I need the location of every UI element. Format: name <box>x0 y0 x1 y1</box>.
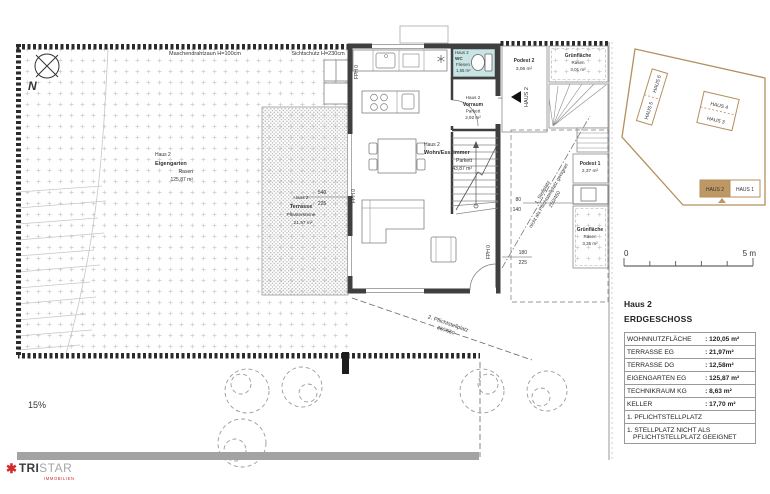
table-row: EIGENGARTEN EG: 125,87 m² <box>625 372 756 385</box>
info-panel: Haus 2 ERDGESCHOSS WOHNNUTZFLÄCHE: 120,0… <box>624 299 758 444</box>
toilet-icon <box>472 54 493 71</box>
svg-text:Rasen: Rasen <box>571 60 585 65</box>
podest1: Podest 1 2,37 m² <box>573 154 608 183</box>
svg-text:2,37 m²: 2,37 m² <box>582 168 599 174</box>
svg-text:3,06 m²: 3,06 m² <box>516 66 533 72</box>
logo-subtitle: IMMOBILIEN <box>44 477 75 481</box>
table-row: TERRASSE EG: 21,97m² <box>625 346 756 359</box>
svg-text:80: 80 <box>515 197 521 203</box>
svg-text:3,01 m²: 3,01 m² <box>570 67 586 72</box>
table-row-note: 1. STELLPLATZ NICHT ALS PFLICHTSTELLPLAT… <box>625 424 756 444</box>
exterior-stairs <box>549 84 608 152</box>
svg-text:WC: WC <box>455 56 463 61</box>
svg-text:Terrasse: Terrasse <box>290 204 313 210</box>
svg-text:Grünfläche: Grünfläche <box>577 227 604 233</box>
area-table: WOHNNUTZFLÄCHE: 120,05 m² TERRASSE EG: 2… <box>624 332 756 444</box>
north-label: N <box>28 79 37 93</box>
logo-star-icon: ✱ <box>6 461 17 476</box>
svg-text:Podest 2: Podest 2 <box>514 58 535 64</box>
terrace-area: Haus 2 Terrasse Pflastersteine 21,97 m² <box>262 107 348 295</box>
svg-text:140: 140 <box>513 207 522 213</box>
building: Haus 2 WC Fliesen 1,65 m² Haus 2 Vorraum… <box>347 44 525 294</box>
svg-text:225: 225 <box>519 260 528 266</box>
site-minimap: HAUS 5 HAUS 6 HAUS 4 HAUS 3 HAUS 2 HAUS … <box>618 42 770 212</box>
info-title: Haus 2 <box>624 299 758 309</box>
scale-end: 5 m <box>743 249 757 258</box>
svg-text:Haus 2: Haus 2 <box>466 95 481 100</box>
svg-text:Pflastersteine: Pflastersteine <box>286 212 315 218</box>
svg-text:Podest 1: Podest 1 <box>580 161 601 167</box>
slope-label: 15% <box>28 400 46 410</box>
svg-text:Haus 2: Haus 2 <box>293 195 309 201</box>
gruenflaeche-bottom: Grünfläche Rasen 3,35 m² <box>573 206 608 268</box>
svg-text:Haus 2: Haus 2 <box>455 50 469 55</box>
svg-text:Haus 2: Haus 2 <box>424 142 440 148</box>
wc-room: Haus 2 WC Fliesen 1,65 m² <box>452 48 496 78</box>
armchair <box>431 237 456 262</box>
logo-text-tri: TRI <box>19 461 39 475</box>
stamp-box <box>400 26 448 43</box>
retaining-wall <box>17 452 479 460</box>
fph-marker: FPH 0 <box>486 245 492 259</box>
svg-text:Vorraum: Vorraum <box>463 102 484 108</box>
technik-box <box>573 185 608 204</box>
svg-text:125,87 m²: 125,87 m² <box>170 177 193 183</box>
svg-text:Grünfläche: Grünfläche <box>565 53 592 59</box>
svg-text:Parkett: Parkett <box>466 109 481 114</box>
svg-text:HAUS 2: HAUS 2 <box>706 187 724 193</box>
svg-text:Parkett: Parkett <box>456 158 472 164</box>
svg-text:Rasen: Rasen <box>179 169 194 175</box>
svg-text:nicht als Pflichtstellplatz ge: nicht als Pflichtstellplatz geeignet <box>528 162 570 229</box>
svg-text:3,35 m²: 3,35 m² <box>582 241 598 246</box>
svg-text:1,65 m²: 1,65 m² <box>456 68 471 73</box>
gruenflaeche-top: Grünfläche Rasen 3,01 m² <box>549 46 608 82</box>
svg-text:540: 540 <box>318 190 327 196</box>
site-plan-drawing: N Maschendrahtzaun H=100cm Sichtschutz H… <box>0 0 620 494</box>
fph-marker: FPH 0 <box>351 189 357 203</box>
table-row: WOHNNUTZFLÄCHE: 120,05 m² <box>625 333 756 346</box>
svg-text:2,92 m²: 2,92 m² <box>465 115 481 120</box>
floorplan-sheet: N Maschendrahtzaun H=100cm Sichtschutz H… <box>0 0 770 494</box>
tree-icon <box>282 367 322 407</box>
svg-text:225: 225 <box>318 201 327 207</box>
table-row: TERRASSE DG: 12,58m² <box>625 359 756 372</box>
minimap-haus-2: HAUS 2 <box>700 180 730 197</box>
table-row: TECHNIKRAUM KG: 8,63 m² <box>625 385 756 398</box>
scale-bar: 0 5 m <box>620 246 760 272</box>
scale-start: 0 <box>624 249 629 258</box>
svg-text:43,87 m²: 43,87 m² <box>452 166 472 172</box>
tree-icon <box>460 369 504 413</box>
fence-label-left: Maschendrahtzaun H=100cm <box>169 51 241 57</box>
svg-text:Fliesen: Fliesen <box>456 62 470 67</box>
svg-text:Wohn/Esszimmer: Wohn/Esszimmer <box>424 150 471 156</box>
logo-text-star: STAR <box>39 461 72 475</box>
fph-marker: FPH 0 <box>354 65 360 79</box>
table-row-note: 1. PFLICHTSTELLPLATZ <box>625 411 756 424</box>
svg-text:21,97 m²: 21,97 m² <box>294 220 313 226</box>
svg-text:Eigengarten: Eigengarten <box>155 161 187 167</box>
parking2: 2. Pflichtstellplatz 250/550 <box>352 298 532 457</box>
svg-text:HAUS 2: HAUS 2 <box>524 87 530 107</box>
svg-text:HAUS 1: HAUS 1 <box>736 187 754 193</box>
svg-text:Haus 2: Haus 2 <box>155 152 171 158</box>
minimap-haus-1: HAUS 1 <box>730 180 760 197</box>
svg-text:180: 180 <box>519 250 528 256</box>
table-row: KELLER: 17,70 m² <box>625 398 756 411</box>
company-logo: ✱TRISTAR IMMOBILIEN <box>6 460 75 481</box>
tree-icon <box>225 369 269 413</box>
fence-label-right: Sichtschutz H=230cm <box>291 51 345 57</box>
tree-icon <box>527 371 567 411</box>
svg-text:Rasen: Rasen <box>583 234 597 239</box>
info-subtitle: ERDGESCHOSS <box>624 314 758 324</box>
